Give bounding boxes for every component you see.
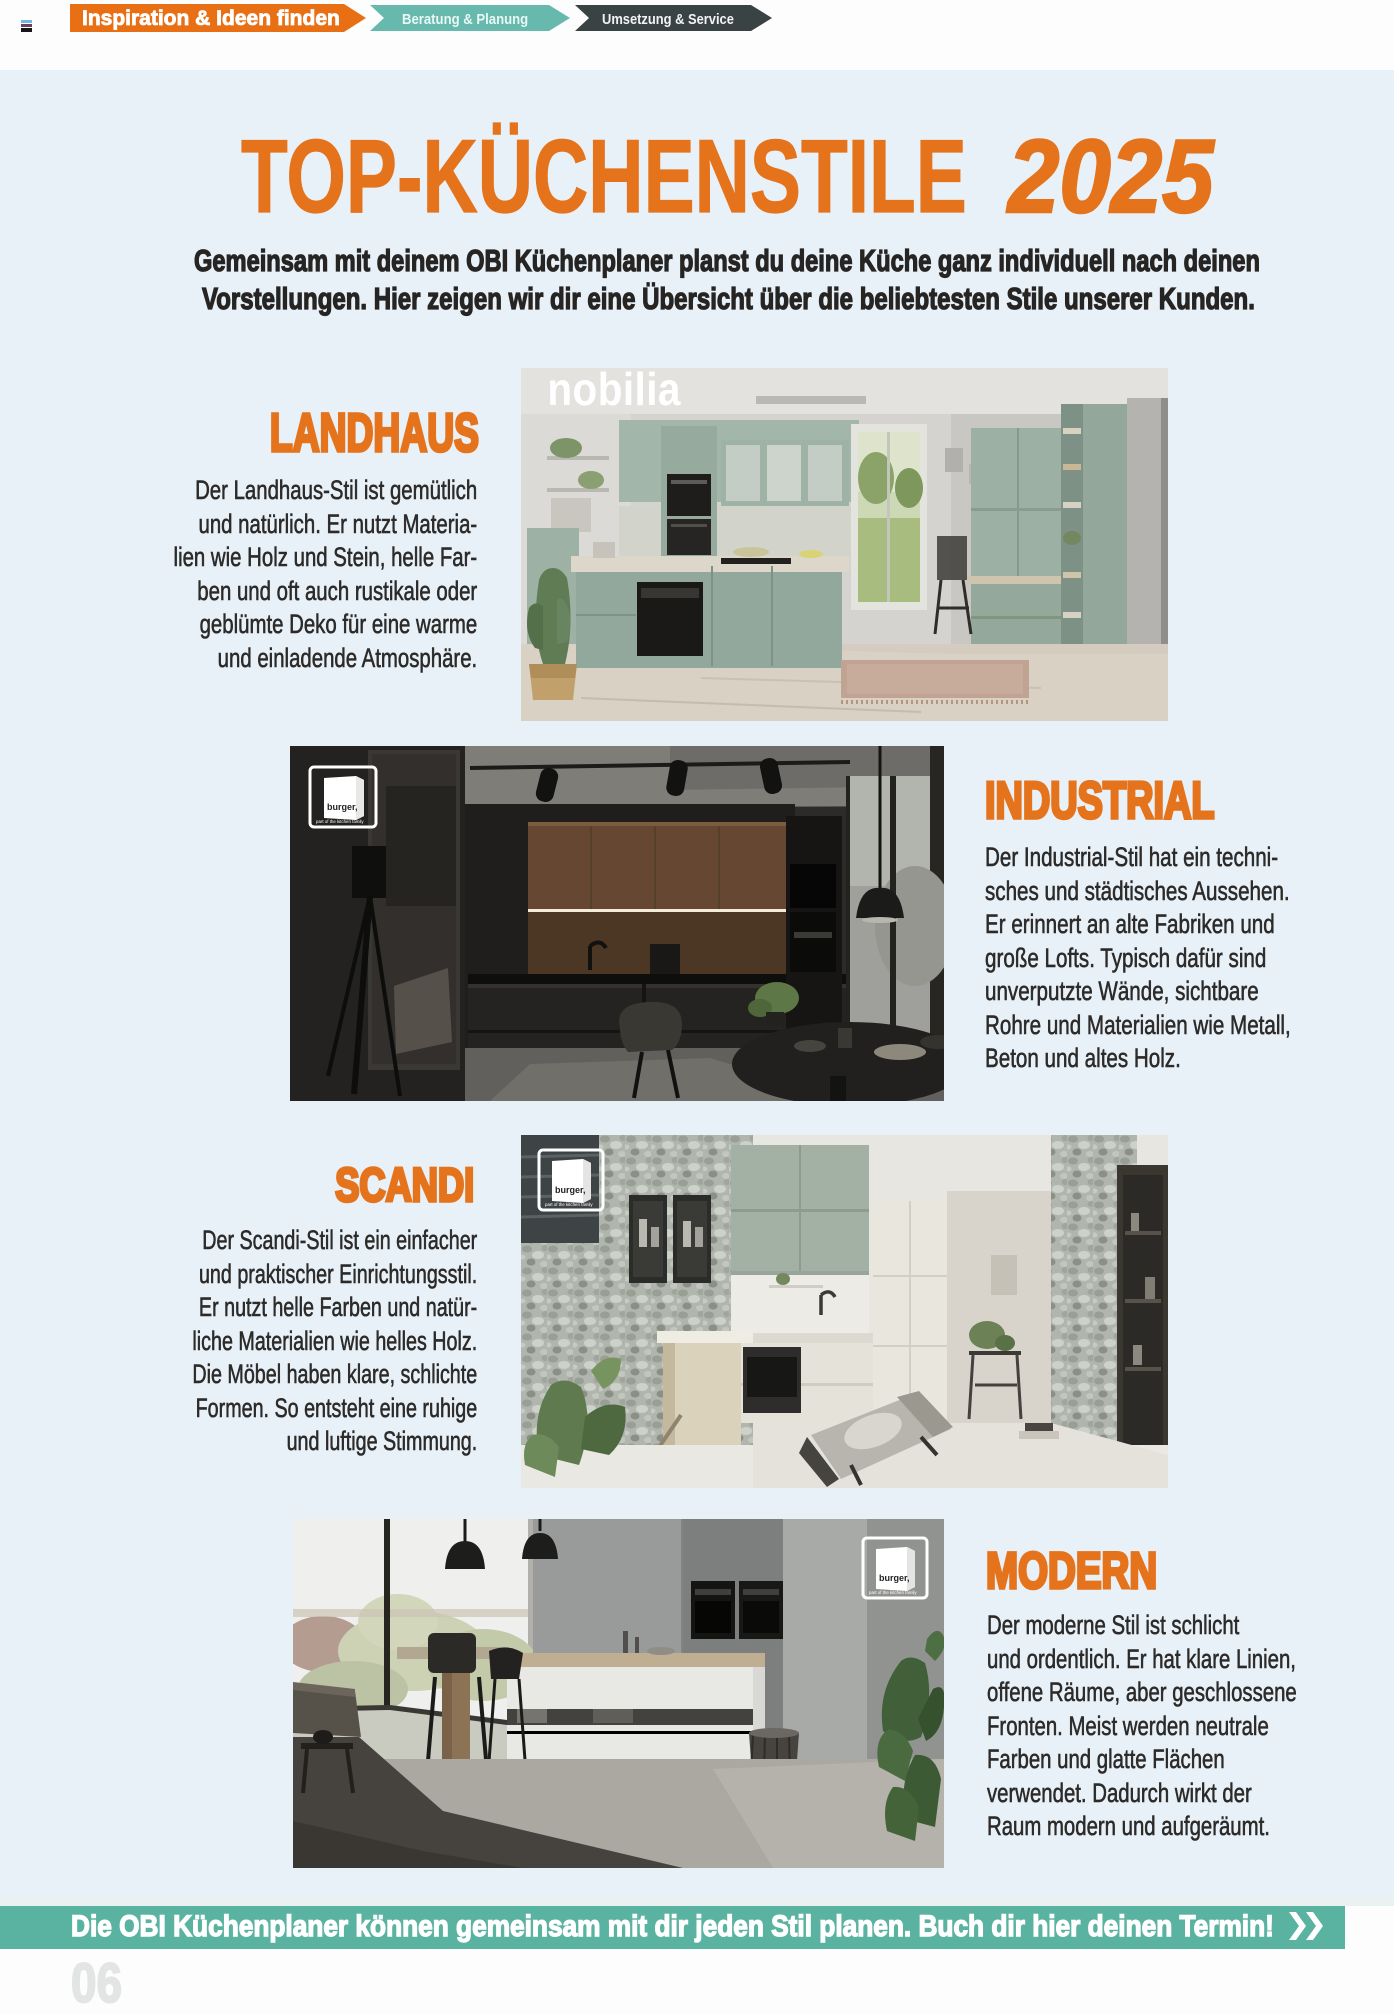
svg-text:burger,: burger,	[879, 1573, 910, 1583]
svg-text:burger,: burger,	[327, 802, 358, 812]
svg-text:part of the kitchen family: part of the kitchen family	[869, 1590, 917, 1595]
svg-text:part of the kitchen family: part of the kitchen family	[545, 1202, 593, 1207]
svg-text:burger,: burger,	[555, 1185, 586, 1195]
svg-text:part of the kitchen family: part of the kitchen family	[316, 819, 364, 824]
svg-text:nobilia: nobilia	[547, 368, 681, 416]
